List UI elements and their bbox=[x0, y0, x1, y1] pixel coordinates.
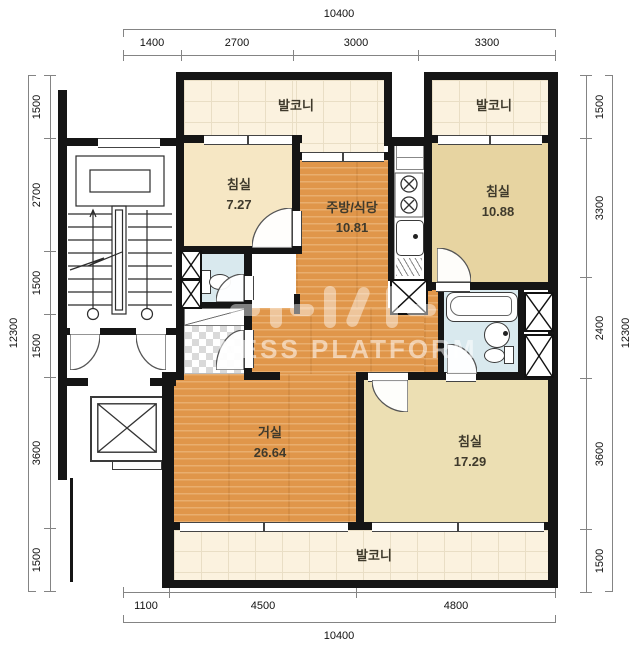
dim-line bbox=[123, 592, 555, 593]
door-arc bbox=[216, 274, 244, 302]
dim-line bbox=[123, 55, 555, 56]
door-arc bbox=[252, 208, 292, 248]
hall-floor bbox=[250, 308, 438, 374]
dim-tick bbox=[418, 50, 419, 61]
window bbox=[372, 522, 544, 532]
dim-tick bbox=[123, 615, 124, 623]
dim-tick bbox=[123, 50, 124, 61]
dim-right-seg5: 1500 bbox=[594, 549, 606, 573]
dim-tick bbox=[44, 591, 56, 592]
dim-tick bbox=[123, 587, 124, 598]
elevator-car bbox=[97, 403, 157, 453]
dim-tick bbox=[28, 75, 36, 76]
kitchen-cabinet bbox=[396, 157, 424, 170]
dim-tick bbox=[28, 591, 36, 592]
dim-tick bbox=[580, 75, 592, 76]
wall-segment bbox=[150, 378, 176, 386]
dim-tick bbox=[580, 277, 592, 278]
wall-segment bbox=[424, 72, 556, 80]
dim-tick bbox=[169, 587, 170, 598]
dim-top-seg4: 3300 bbox=[475, 37, 499, 49]
room-name: 발코니 bbox=[476, 98, 512, 113]
duct-shaft bbox=[180, 279, 202, 309]
dim-tick bbox=[605, 591, 613, 592]
wall-segment bbox=[424, 141, 432, 291]
duct-shaft bbox=[524, 334, 554, 378]
wall-segment bbox=[176, 72, 184, 378]
door-threshold bbox=[244, 276, 254, 300]
door-arc bbox=[437, 248, 471, 282]
dim-line bbox=[123, 622, 555, 623]
door-threshold bbox=[436, 282, 470, 292]
wall-segment bbox=[244, 372, 280, 380]
window bbox=[98, 138, 160, 148]
sink-faucet bbox=[413, 234, 418, 239]
dim-tick bbox=[123, 29, 124, 37]
wall-segment bbox=[100, 328, 136, 335]
bathtub bbox=[446, 292, 518, 322]
dim-left-total: 12300 bbox=[8, 318, 20, 349]
dim-top-total: 10400 bbox=[324, 8, 355, 20]
elevator-door bbox=[112, 461, 162, 470]
dim-tick bbox=[181, 50, 182, 61]
door-arc bbox=[372, 380, 408, 412]
dim-left-seg5: 3600 bbox=[31, 441, 43, 465]
dim-tick bbox=[580, 138, 592, 139]
room-label-bedroom1: 침실 7.27 bbox=[226, 175, 251, 215]
door-arc bbox=[136, 334, 166, 370]
dim-tick bbox=[44, 138, 56, 139]
wall-segment bbox=[162, 580, 558, 588]
dim-line bbox=[612, 75, 613, 592]
room-label-living: 거실 26.64 bbox=[254, 423, 287, 463]
dim-right-seg4: 3600 bbox=[594, 442, 606, 466]
dim-tick bbox=[44, 528, 56, 529]
toilet bbox=[484, 348, 505, 363]
wall-segment bbox=[176, 72, 392, 80]
dim-top-seg1: 1400 bbox=[140, 37, 164, 49]
dim-tick bbox=[44, 251, 56, 252]
dim-line bbox=[28, 75, 29, 592]
dim-tick bbox=[293, 50, 294, 61]
wall-segment bbox=[58, 90, 67, 480]
room-area: 10.81 bbox=[326, 218, 377, 238]
dim-tick bbox=[605, 75, 613, 76]
window bbox=[302, 152, 384, 162]
door-arc bbox=[216, 330, 244, 370]
dim-tick bbox=[580, 378, 592, 379]
door-threshold bbox=[244, 330, 254, 368]
window bbox=[204, 135, 292, 145]
dim-right-seg2: 3300 bbox=[594, 196, 606, 220]
wall-segment bbox=[292, 141, 300, 211]
room-name: 발코니 bbox=[356, 548, 392, 563]
dim-tick bbox=[44, 314, 56, 315]
door-threshold bbox=[292, 211, 302, 246]
wall-segment bbox=[58, 328, 70, 335]
dim-left-seg3: 1500 bbox=[31, 271, 43, 295]
dim-left-seg2: 2700 bbox=[31, 183, 43, 207]
dim-right-seg1: 1500 bbox=[594, 95, 606, 119]
dim-tick bbox=[44, 377, 56, 378]
staircase bbox=[64, 146, 176, 326]
stove-icon bbox=[394, 172, 424, 218]
room-name: 거실 bbox=[254, 423, 287, 443]
room-area: 17.29 bbox=[454, 452, 487, 472]
dim-top-seg3: 3000 bbox=[344, 37, 368, 49]
duct-shaft bbox=[524, 292, 554, 332]
room-name: 침실 bbox=[226, 175, 251, 195]
duct-shaft bbox=[390, 279, 428, 315]
dim-tick bbox=[555, 615, 556, 623]
wall-segment bbox=[470, 282, 556, 290]
dim-bottom-seg1: 1100 bbox=[134, 600, 158, 612]
window bbox=[438, 135, 542, 145]
wall-segment bbox=[162, 372, 174, 588]
dim-left-seg6: 1500 bbox=[31, 548, 43, 572]
dim-tick bbox=[555, 587, 556, 598]
dim-line bbox=[50, 75, 51, 592]
wall-segment bbox=[166, 328, 176, 335]
room-area: 7.27 bbox=[226, 195, 251, 215]
dim-left-seg4: 1500 bbox=[31, 334, 43, 358]
counter-hatch bbox=[396, 258, 422, 276]
wall-segment bbox=[408, 372, 446, 380]
dim-tick bbox=[555, 50, 556, 61]
wall-segment bbox=[388, 141, 394, 281]
floor-plan: 10400 1400 2700 3000 3300 1100 4500 4800… bbox=[0, 0, 640, 655]
dim-left-seg1: 1500 bbox=[31, 95, 43, 119]
dim-tick bbox=[555, 29, 556, 37]
room-name: 침실 bbox=[454, 432, 487, 452]
dim-line bbox=[123, 29, 555, 30]
dim-tick bbox=[356, 587, 357, 598]
wall-segment bbox=[294, 294, 300, 314]
room-area: 10.88 bbox=[482, 202, 515, 222]
dim-bottom-seg3: 4800 bbox=[444, 600, 468, 612]
room-label-balcony-bottom: 발코니 bbox=[356, 546, 392, 566]
wall-segment bbox=[244, 246, 252, 276]
entry-closet bbox=[184, 308, 246, 326]
room-label-balcony-tr: 발코니 bbox=[476, 96, 512, 116]
dim-bottom-total: 10400 bbox=[324, 630, 355, 642]
toilet-tank bbox=[504, 346, 514, 364]
room-label-bedroom2: 침실 10.88 bbox=[482, 182, 515, 222]
dim-right-total: 12300 bbox=[620, 318, 632, 349]
dim-tick bbox=[580, 592, 592, 593]
dim-line bbox=[586, 75, 587, 592]
window bbox=[180, 522, 348, 532]
duct-shaft bbox=[180, 250, 202, 280]
door-arc bbox=[70, 334, 100, 370]
wall-segment bbox=[356, 372, 364, 528]
dim-tick bbox=[580, 529, 592, 530]
room-label-bedroom3: 침실 17.29 bbox=[454, 432, 487, 472]
room-name: 침실 bbox=[482, 182, 515, 202]
wall-segment bbox=[58, 378, 88, 386]
wall-segment bbox=[438, 290, 444, 380]
wall-segment bbox=[70, 478, 73, 582]
room-name: 발코니 bbox=[278, 98, 314, 113]
dim-tick bbox=[44, 75, 56, 76]
room-label-balcony-tl: 발코니 bbox=[278, 96, 314, 116]
room-area: 26.64 bbox=[254, 443, 287, 463]
wall-segment bbox=[384, 72, 392, 145]
dim-top-seg2: 2700 bbox=[225, 37, 249, 49]
kitchen-sink bbox=[396, 220, 424, 256]
door-arc bbox=[447, 344, 477, 374]
room-name: 주방/식당 bbox=[326, 198, 377, 218]
room-label-kitchen: 주방/식당 10.81 bbox=[326, 198, 377, 238]
dim-bottom-seg2: 4500 bbox=[251, 600, 275, 612]
basin-drain bbox=[503, 331, 508, 336]
dim-right-seg3: 2400 bbox=[594, 316, 606, 340]
